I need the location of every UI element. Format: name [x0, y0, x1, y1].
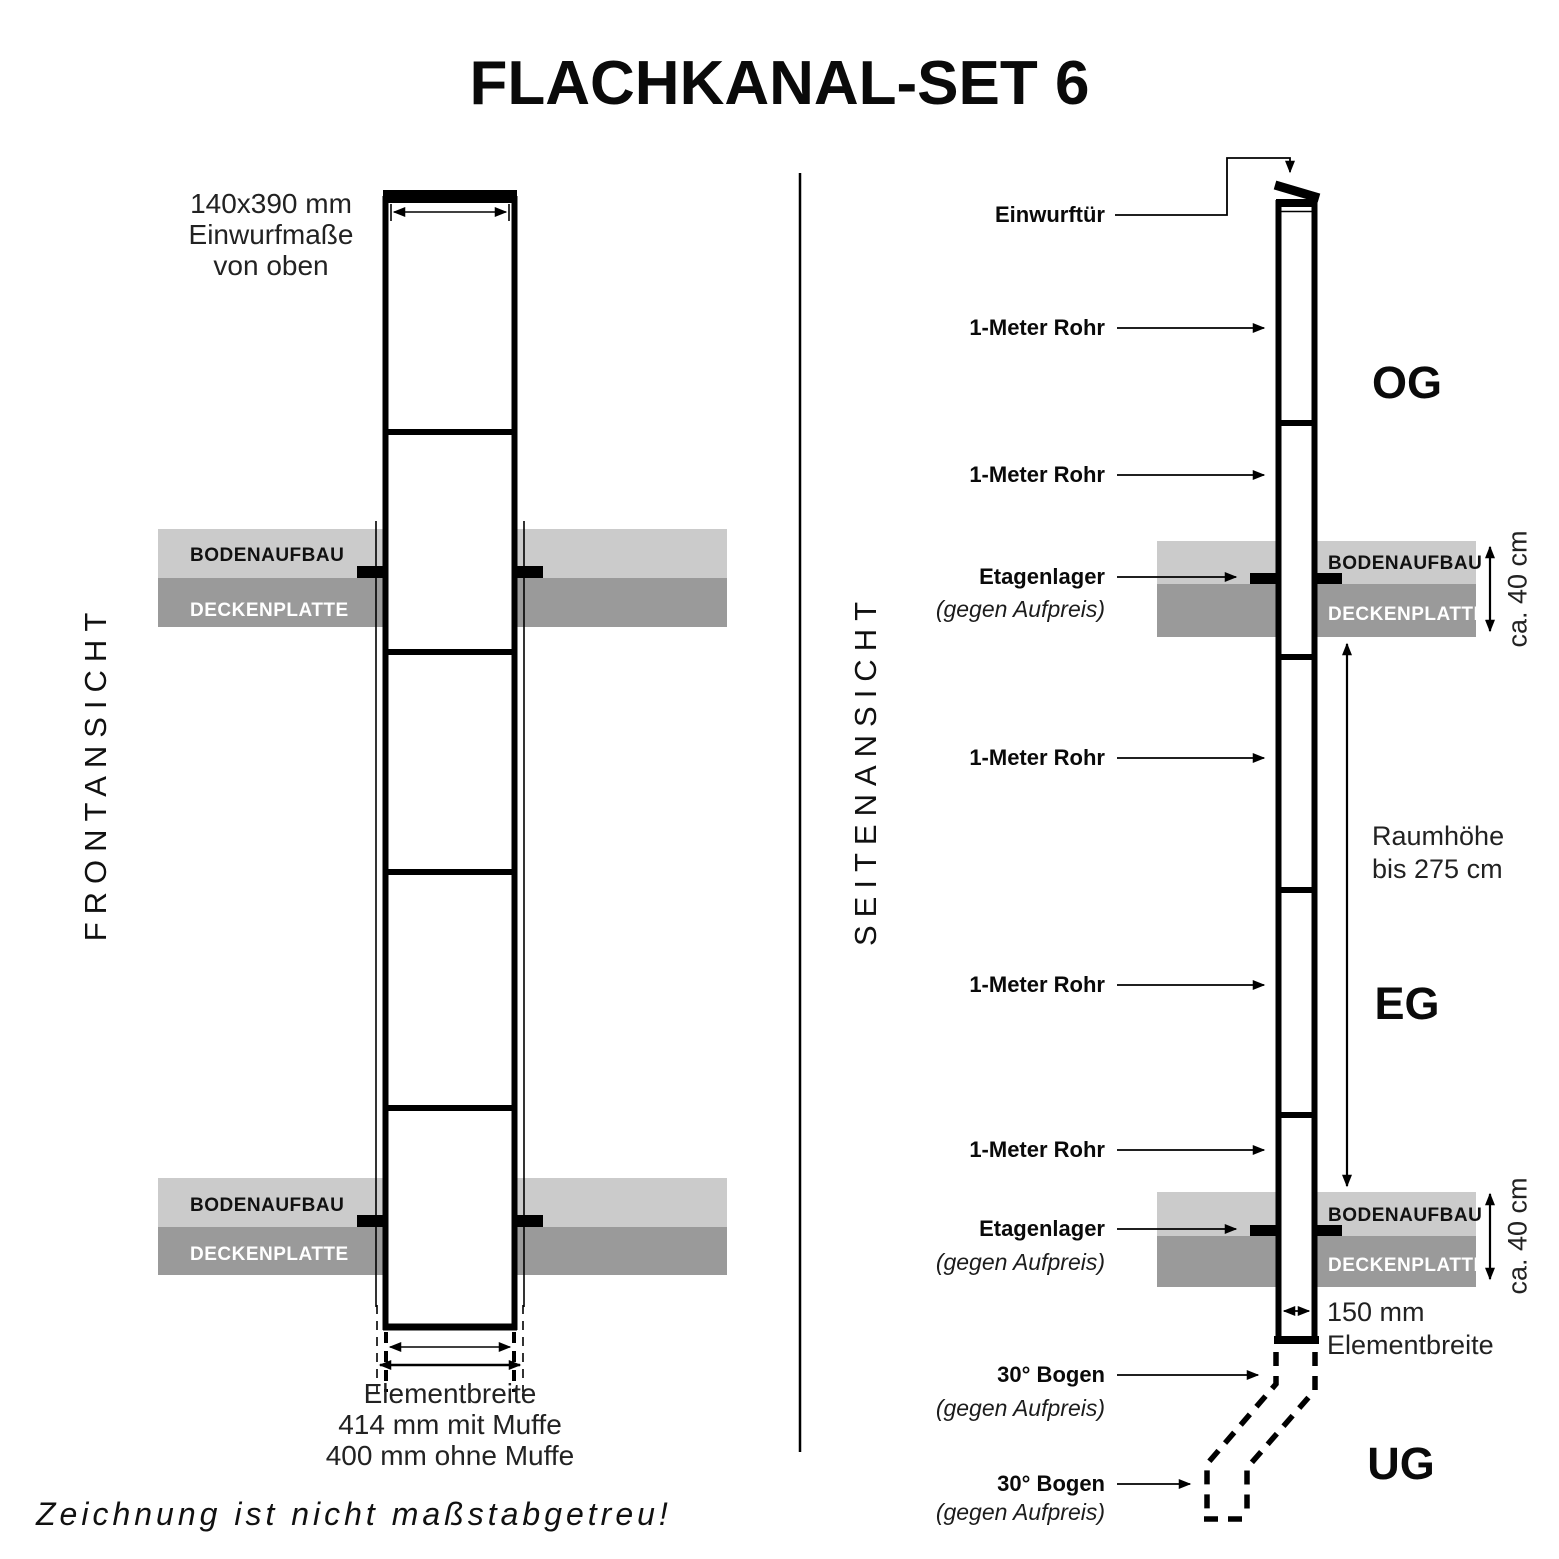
front-slab1-floor-label: BODENAUFBAU — [190, 545, 344, 567]
label-1-meter-rohr-5: 1-Meter Rohr — [845, 1137, 1105, 1163]
label-etagenlager-2-surcharge: (gegen Aufpreis) — [845, 1249, 1105, 1275]
dim-room-height-line1: Raumhöhe — [1372, 820, 1504, 853]
front-top-annotation-line2: Einwurfmaße — [151, 219, 391, 250]
label-30-bogen-2: 30° Bogen — [845, 1471, 1105, 1497]
side-slab2-ceiling-label: DECKENPLATTE — [1328, 1255, 1466, 1277]
door-flap — [1275, 185, 1319, 198]
front-top-annotation: 140x390 mm Einwurfmaße von oben — [151, 188, 391, 281]
label-1-meter-rohr-3: 1-Meter Rohr — [845, 745, 1105, 771]
page-title: FLACHKANAL-SET 6 — [0, 48, 1559, 119]
dim-ca-40cm-1: ca. 40 cm — [1503, 530, 1534, 647]
door-leader-line — [1115, 158, 1290, 215]
dim-element-width-line2: Elementbreite — [1327, 1329, 1494, 1362]
floor-label-ug: UG — [1356, 1438, 1446, 1490]
dim-room-height: Raumhöhe bis 275 cm — [1372, 820, 1504, 886]
side-duct — [1274, 200, 1319, 1343]
front-top-annotation-line3: von oben — [151, 250, 391, 281]
bend-30-dashed-pipe — [1204, 1352, 1315, 1519]
side-slab1-ceiling-label: DECKENPLATTE — [1328, 604, 1466, 626]
dim-element-width: 150 mm Elementbreite — [1327, 1296, 1494, 1362]
label-etagenlager-1: Etagenlager — [845, 564, 1105, 590]
front-slab2-ceiling-label: DECKENPLATTE — [190, 1244, 349, 1266]
label-etagenlager-2: Etagenlager — [845, 1216, 1105, 1242]
dim-room-height-line2: bis 275 cm — [1372, 853, 1504, 886]
front-duct — [383, 190, 517, 1330]
label-etagenlager-1-surcharge: (gegen Aufpreis) — [845, 596, 1105, 622]
front-bottom-annotation: Elementbreite 414 mm mit Muffe 400 mm oh… — [300, 1378, 600, 1471]
front-slab1-ceiling-label: DECKENPLATTE — [190, 600, 349, 622]
footer-note: Zeichnung ist nicht maßstabgetreu! — [36, 1496, 672, 1533]
page: { "title": "FLACHKANAL-SET 6", "footer_n… — [0, 0, 1559, 1559]
label-1-meter-rohr-1: 1-Meter Rohr — [845, 315, 1105, 341]
label-einwurftuer: Einwurftür — [845, 202, 1105, 228]
side-slab2-floor-label: BODENAUFBAU — [1328, 1205, 1466, 1227]
front-bottom-annotation-line2: 414 mm mit Muffe — [300, 1409, 600, 1440]
floor-label-og: OG — [1362, 357, 1452, 409]
label-30-bogen-1: 30° Bogen — [845, 1362, 1105, 1388]
side-slab1-floor-label: BODENAUFBAU — [1328, 553, 1466, 575]
label-1-meter-rohr-4: 1-Meter Rohr — [845, 972, 1105, 998]
label-1-meter-rohr-2: 1-Meter Rohr — [845, 462, 1105, 488]
floor-label-eg: EG — [1362, 978, 1452, 1030]
front-bottom-annotation-line1: Elementbreite — [300, 1378, 600, 1409]
dim-ca-40cm-2: ca. 40 cm — [1503, 1177, 1534, 1294]
callout-arrows — [1117, 328, 1264, 1484]
dim-element-width-line1: 150 mm — [1327, 1296, 1494, 1329]
front-top-annotation-line1: 140x390 mm — [151, 188, 391, 219]
label-30-bogen-2-surcharge: (gegen Aufpreis) — [845, 1499, 1105, 1525]
front-slab2-floor-label: BODENAUFBAU — [190, 1195, 344, 1217]
front-bottom-annotation-line3: 400 mm ohne Muffe — [300, 1440, 600, 1471]
front-view-label: FRONTANSICHT — [78, 605, 114, 942]
label-30-bogen-1-surcharge: (gegen Aufpreis) — [845, 1395, 1105, 1421]
